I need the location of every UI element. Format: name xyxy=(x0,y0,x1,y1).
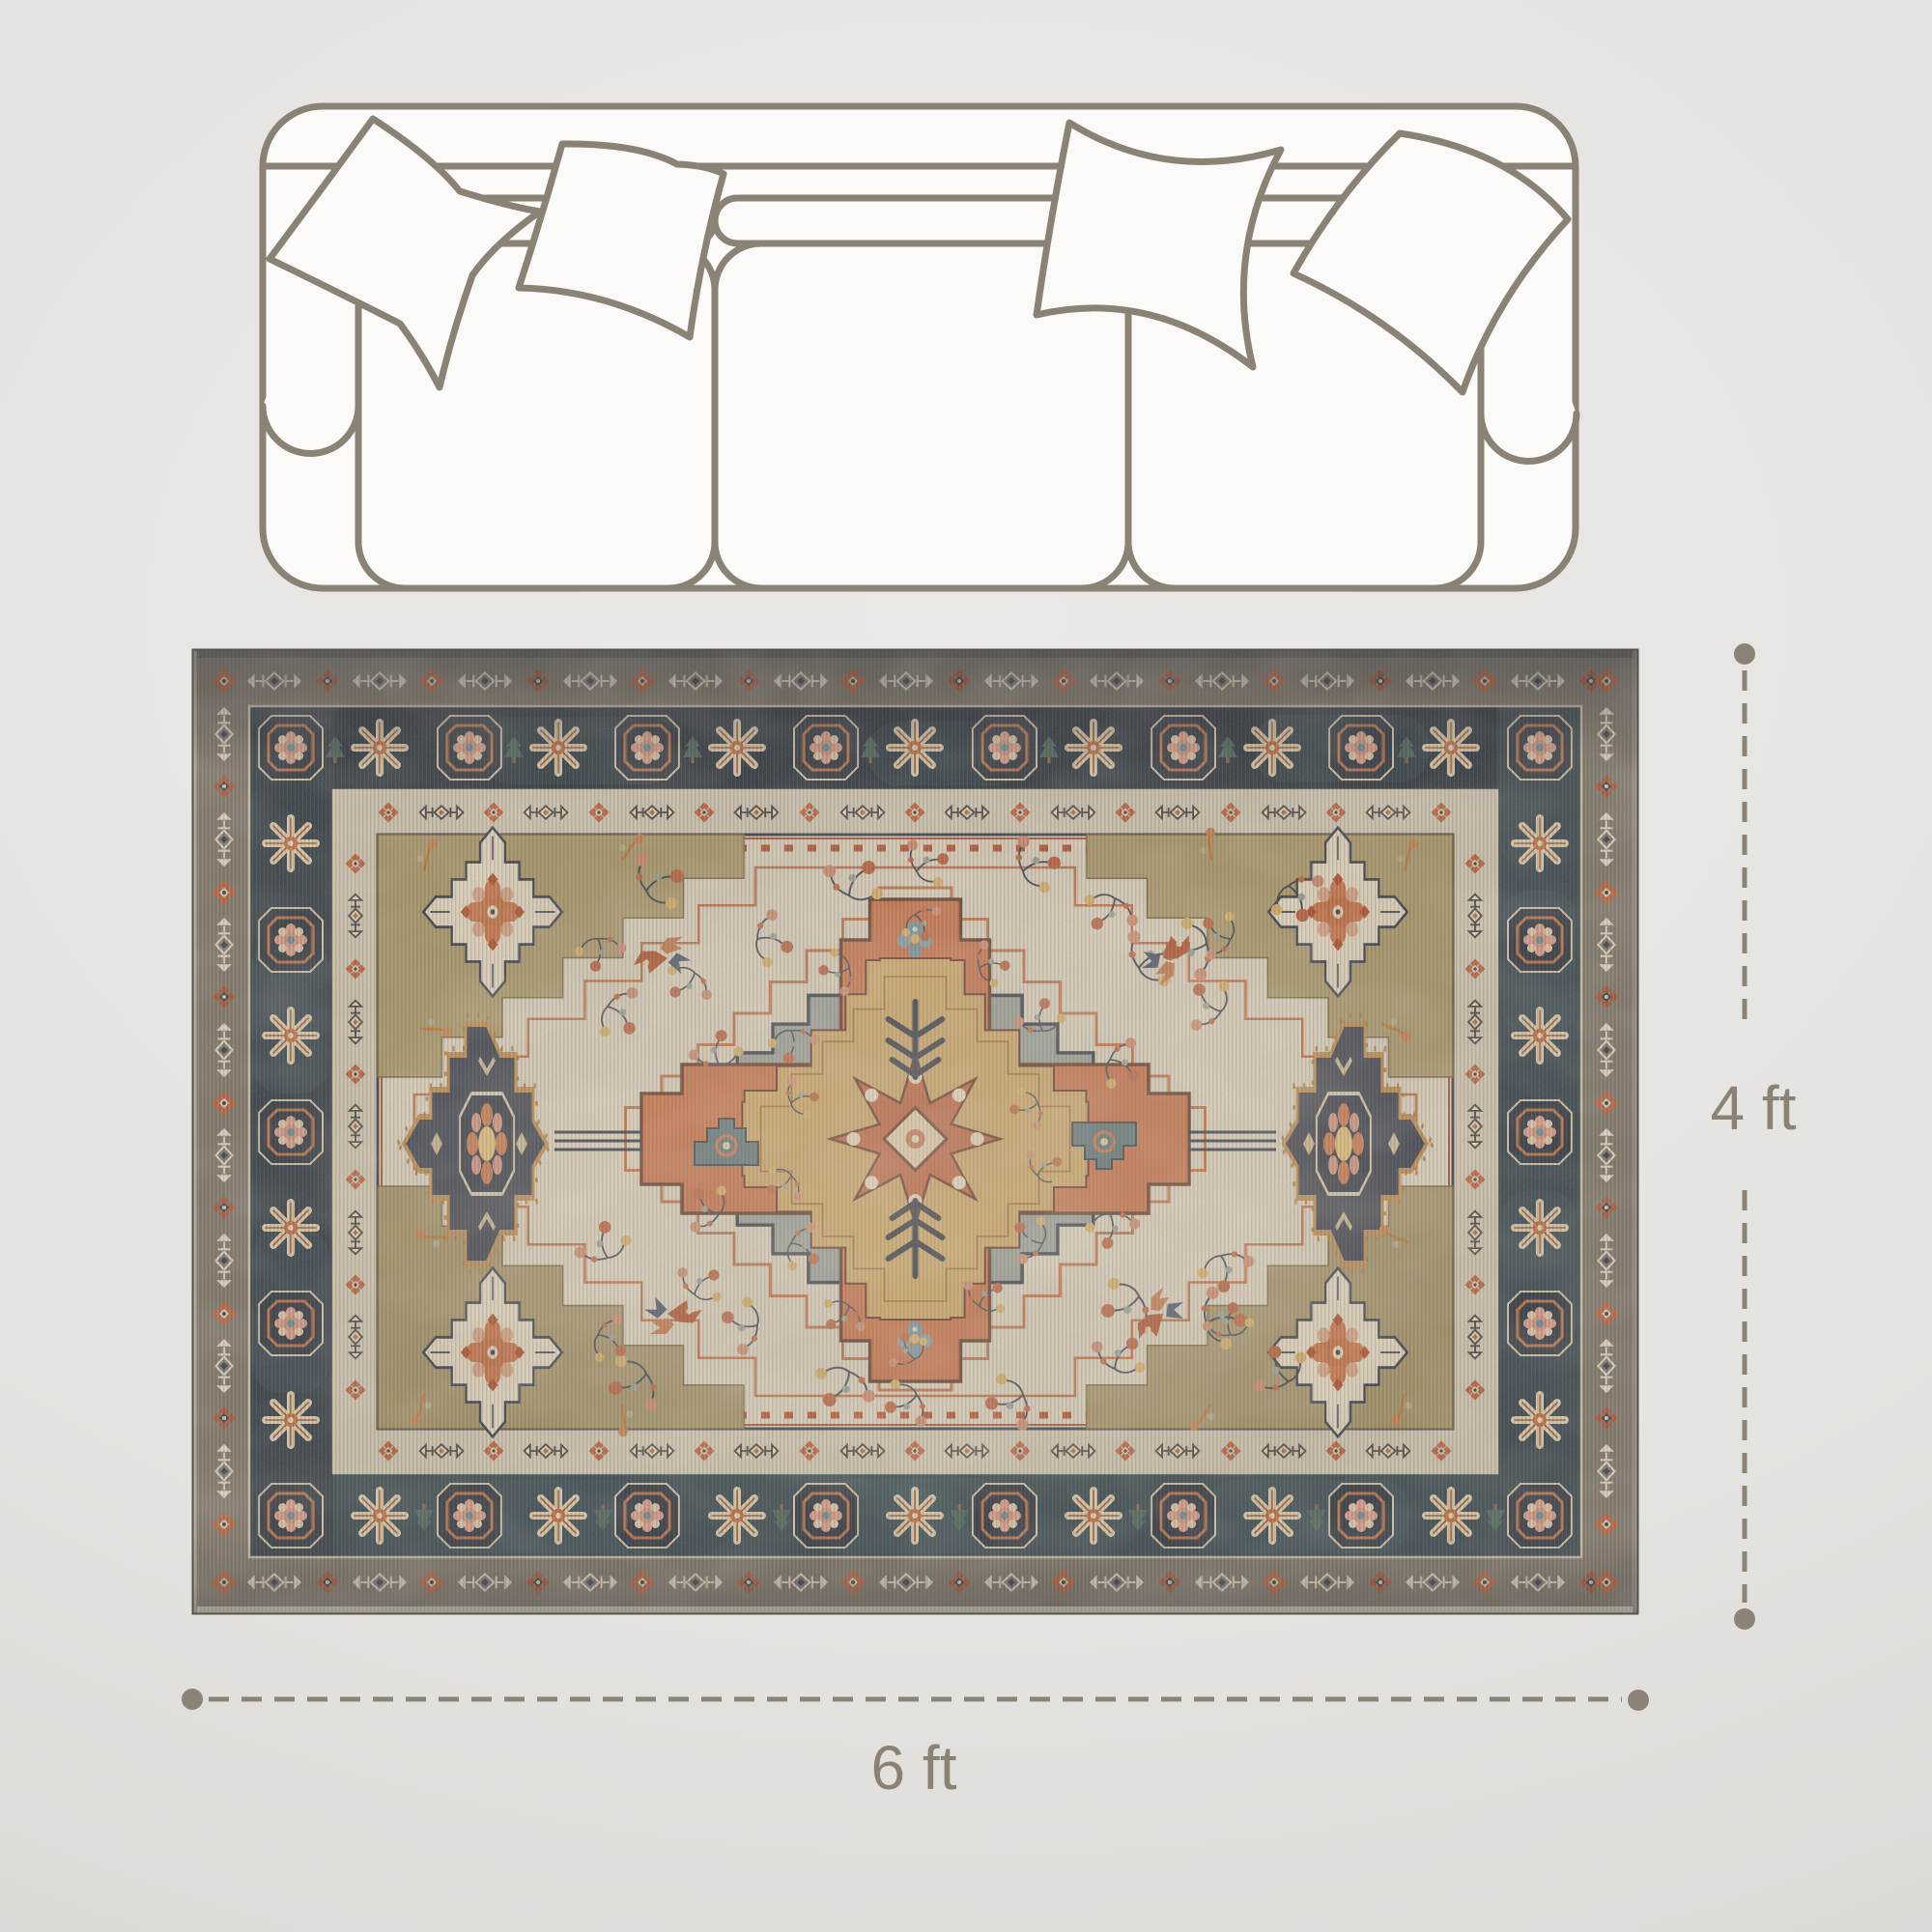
svg-text:4 ft: 4 ft xyxy=(1711,1073,1797,1143)
svg-text:6 ft: 6 ft xyxy=(871,1733,957,1803)
